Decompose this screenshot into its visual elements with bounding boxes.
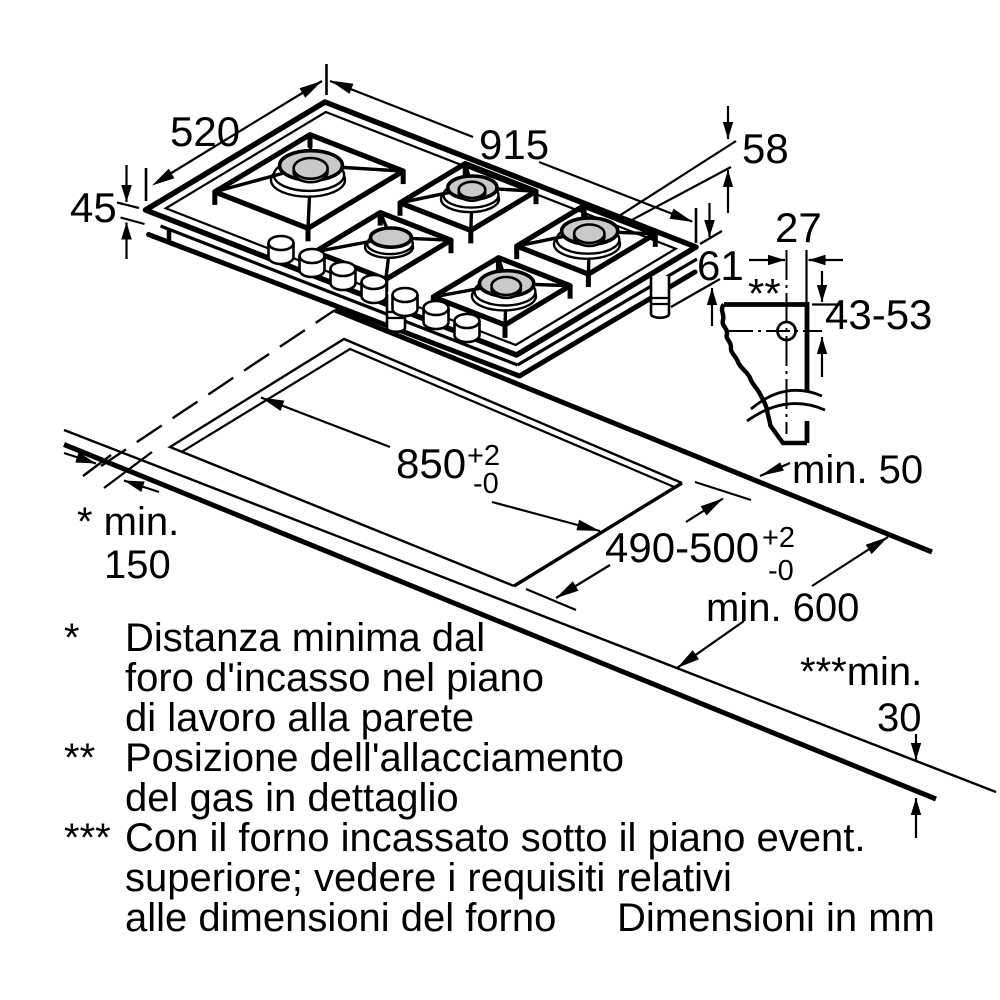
svg-text:-0: -0	[473, 468, 499, 500]
svg-text:foro d'incasso nel piano: foro d'incasso nel piano	[125, 656, 544, 700]
svg-text:43-53: 43-53	[825, 291, 932, 338]
svg-text:150: 150	[104, 543, 171, 587]
svg-text:45: 45	[70, 184, 117, 231]
svg-text:Posizione dell'allacciamento: Posizione dell'allacciamento	[125, 736, 624, 780]
svg-text:**: **	[748, 270, 781, 317]
svg-text:min. 600: min. 600	[706, 586, 859, 630]
svg-text:-0: -0	[768, 555, 794, 587]
svg-text:min. 50: min. 50	[792, 448, 923, 492]
svg-text:850: 850	[396, 440, 466, 487]
svg-text:520: 520	[170, 108, 240, 155]
svg-text:Distanza minima dal: Distanza minima dal	[125, 616, 485, 660]
svg-text:**: **	[64, 736, 95, 780]
svg-text:di lavoro alla parete: di lavoro alla parete	[125, 696, 474, 740]
svg-text:* min.: * min.	[77, 500, 179, 544]
svg-text:del gas in dettaglio: del gas in dettaglio	[125, 776, 459, 820]
svg-text:58: 58	[742, 125, 789, 172]
svg-text:alle dimensioni del forno: alle dimensioni del forno	[125, 896, 556, 940]
svg-text:+2: +2	[762, 522, 795, 554]
svg-text:490-500: 490-500	[605, 524, 759, 571]
svg-text:30: 30	[877, 696, 922, 740]
svg-text:27: 27	[775, 204, 822, 251]
svg-text:superiore; vedere i requisiti: superiore; vedere i requisiti relativi	[125, 856, 732, 900]
svg-text:*: *	[64, 616, 80, 660]
svg-text:Con il forno incassato sotto i: Con il forno incassato sotto il piano ev…	[125, 816, 865, 860]
svg-text:915: 915	[479, 121, 549, 168]
svg-text:61: 61	[697, 242, 744, 289]
svg-text:***: ***	[64, 816, 111, 860]
svg-text:Dimensioni in mm: Dimensioni in mm	[617, 896, 935, 940]
svg-text:***min.: ***min.	[800, 650, 922, 694]
